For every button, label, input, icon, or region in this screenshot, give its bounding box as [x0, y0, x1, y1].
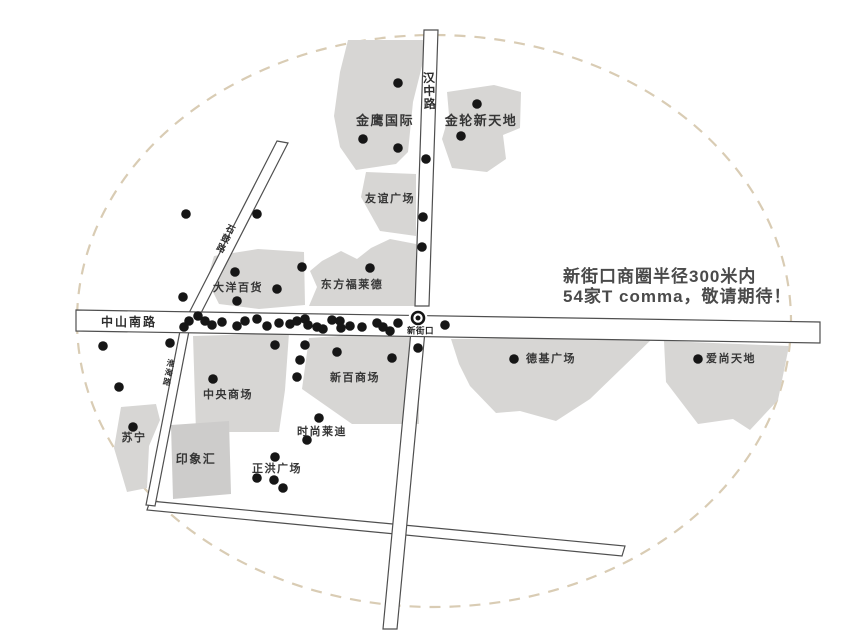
- store-dot: [230, 267, 240, 277]
- store-dot: [357, 322, 367, 332]
- store-dot: [269, 475, 279, 485]
- store-dot: [336, 323, 346, 333]
- store-dot: [181, 209, 191, 219]
- store-dot: [262, 321, 272, 331]
- metro-station-dot-icon: [416, 316, 421, 321]
- store-dot: [270, 340, 280, 350]
- store-dot: [179, 322, 189, 332]
- store-dot: [418, 212, 428, 222]
- store-dot: [232, 296, 242, 306]
- store-dot: [165, 338, 175, 348]
- store-dot: [345, 321, 355, 331]
- store-dot: [303, 320, 313, 330]
- dayang-baihuo-label: 大洋百货: [213, 280, 263, 294]
- store-dot: [417, 242, 427, 252]
- yinxiang-hui-label: 印象汇: [176, 451, 217, 466]
- store-dot: [295, 355, 305, 365]
- zhenghong-guangchang-label: 正洪广场: [252, 461, 302, 475]
- store-dot: [114, 382, 124, 392]
- store-dot: [358, 134, 368, 144]
- xinjiekou-business-circle-map: 金鹰国际金轮新天地友谊广场大洋百货东方福莱德中央商场新百商场德基广场爱尚天地苏宁…: [0, 0, 842, 640]
- store-dot: [440, 320, 450, 330]
- store-dot: [178, 292, 188, 302]
- youyi-guangchang-label: 友谊广场: [365, 191, 415, 205]
- store-dot: [252, 314, 262, 324]
- zhongshan-south-road-label: 中山南路: [101, 314, 157, 329]
- store-dot: [393, 318, 403, 328]
- store-dot: [393, 143, 403, 153]
- aishang-tiandi-label: 爱尚天地: [706, 351, 756, 365]
- store-dot: [393, 78, 403, 88]
- store-dot: [252, 209, 262, 219]
- road-bottom-road: [147, 501, 625, 556]
- store-dot: [272, 284, 282, 294]
- metro-station-label: 新街口: [407, 326, 434, 336]
- store-dot: [217, 317, 227, 327]
- store-dot: [297, 262, 307, 272]
- building-deji-guangchang: [451, 337, 654, 421]
- store-dot: [270, 452, 280, 462]
- store-dot: [98, 341, 108, 351]
- store-dot: [240, 316, 250, 326]
- store-dot: [421, 154, 431, 164]
- store-dot: [387, 353, 397, 363]
- map-canvas: 金鹰国际金轮新天地友谊广场大洋百货东方福莱德中央商场新百商场德基广场爱尚天地苏宁…: [0, 0, 842, 640]
- store-dot: [365, 263, 375, 273]
- xinbai-shangchang-label: 新百商场: [330, 370, 380, 384]
- jinlun-xintiandi-label: 金轮新天地: [444, 113, 518, 128]
- dongfang-fulaide-label: 东方福莱德: [321, 277, 384, 291]
- building-jinying-guoji: [334, 40, 424, 170]
- suning-label: 苏宁: [122, 430, 147, 444]
- store-dot: [472, 99, 482, 109]
- store-dot: [509, 354, 519, 364]
- zhongyang-shangchang-label: 中央商场: [203, 387, 253, 401]
- store-dot: [207, 320, 217, 330]
- building-dongfang-fulaide: [309, 239, 416, 306]
- store-dot: [292, 316, 302, 326]
- store-dot: [318, 324, 328, 334]
- store-dot: [278, 483, 288, 493]
- store-dot: [300, 340, 310, 350]
- store-dot: [128, 422, 138, 432]
- annotation-line1: 新街口商圈半径300米内: [563, 266, 756, 286]
- store-dot: [314, 413, 324, 423]
- building-jinlun-xintiandi: [442, 85, 521, 172]
- shishang-laidi-label: 时尚莱迪: [297, 424, 347, 438]
- store-dot: [456, 131, 466, 141]
- store-dot: [274, 318, 284, 328]
- store-dot: [332, 347, 342, 357]
- store-dot: [385, 326, 395, 336]
- deji-guangchang-label: 德基广场: [525, 351, 576, 365]
- store-dot: [208, 374, 218, 384]
- store-dot: [413, 343, 423, 353]
- store-dot: [693, 354, 703, 364]
- store-dot: [232, 321, 242, 331]
- store-dot: [292, 372, 302, 382]
- jinying-guoji-label: 金鹰国际: [355, 113, 414, 128]
- annotation-line2: 54家T comma，敬请期待！: [563, 286, 792, 306]
